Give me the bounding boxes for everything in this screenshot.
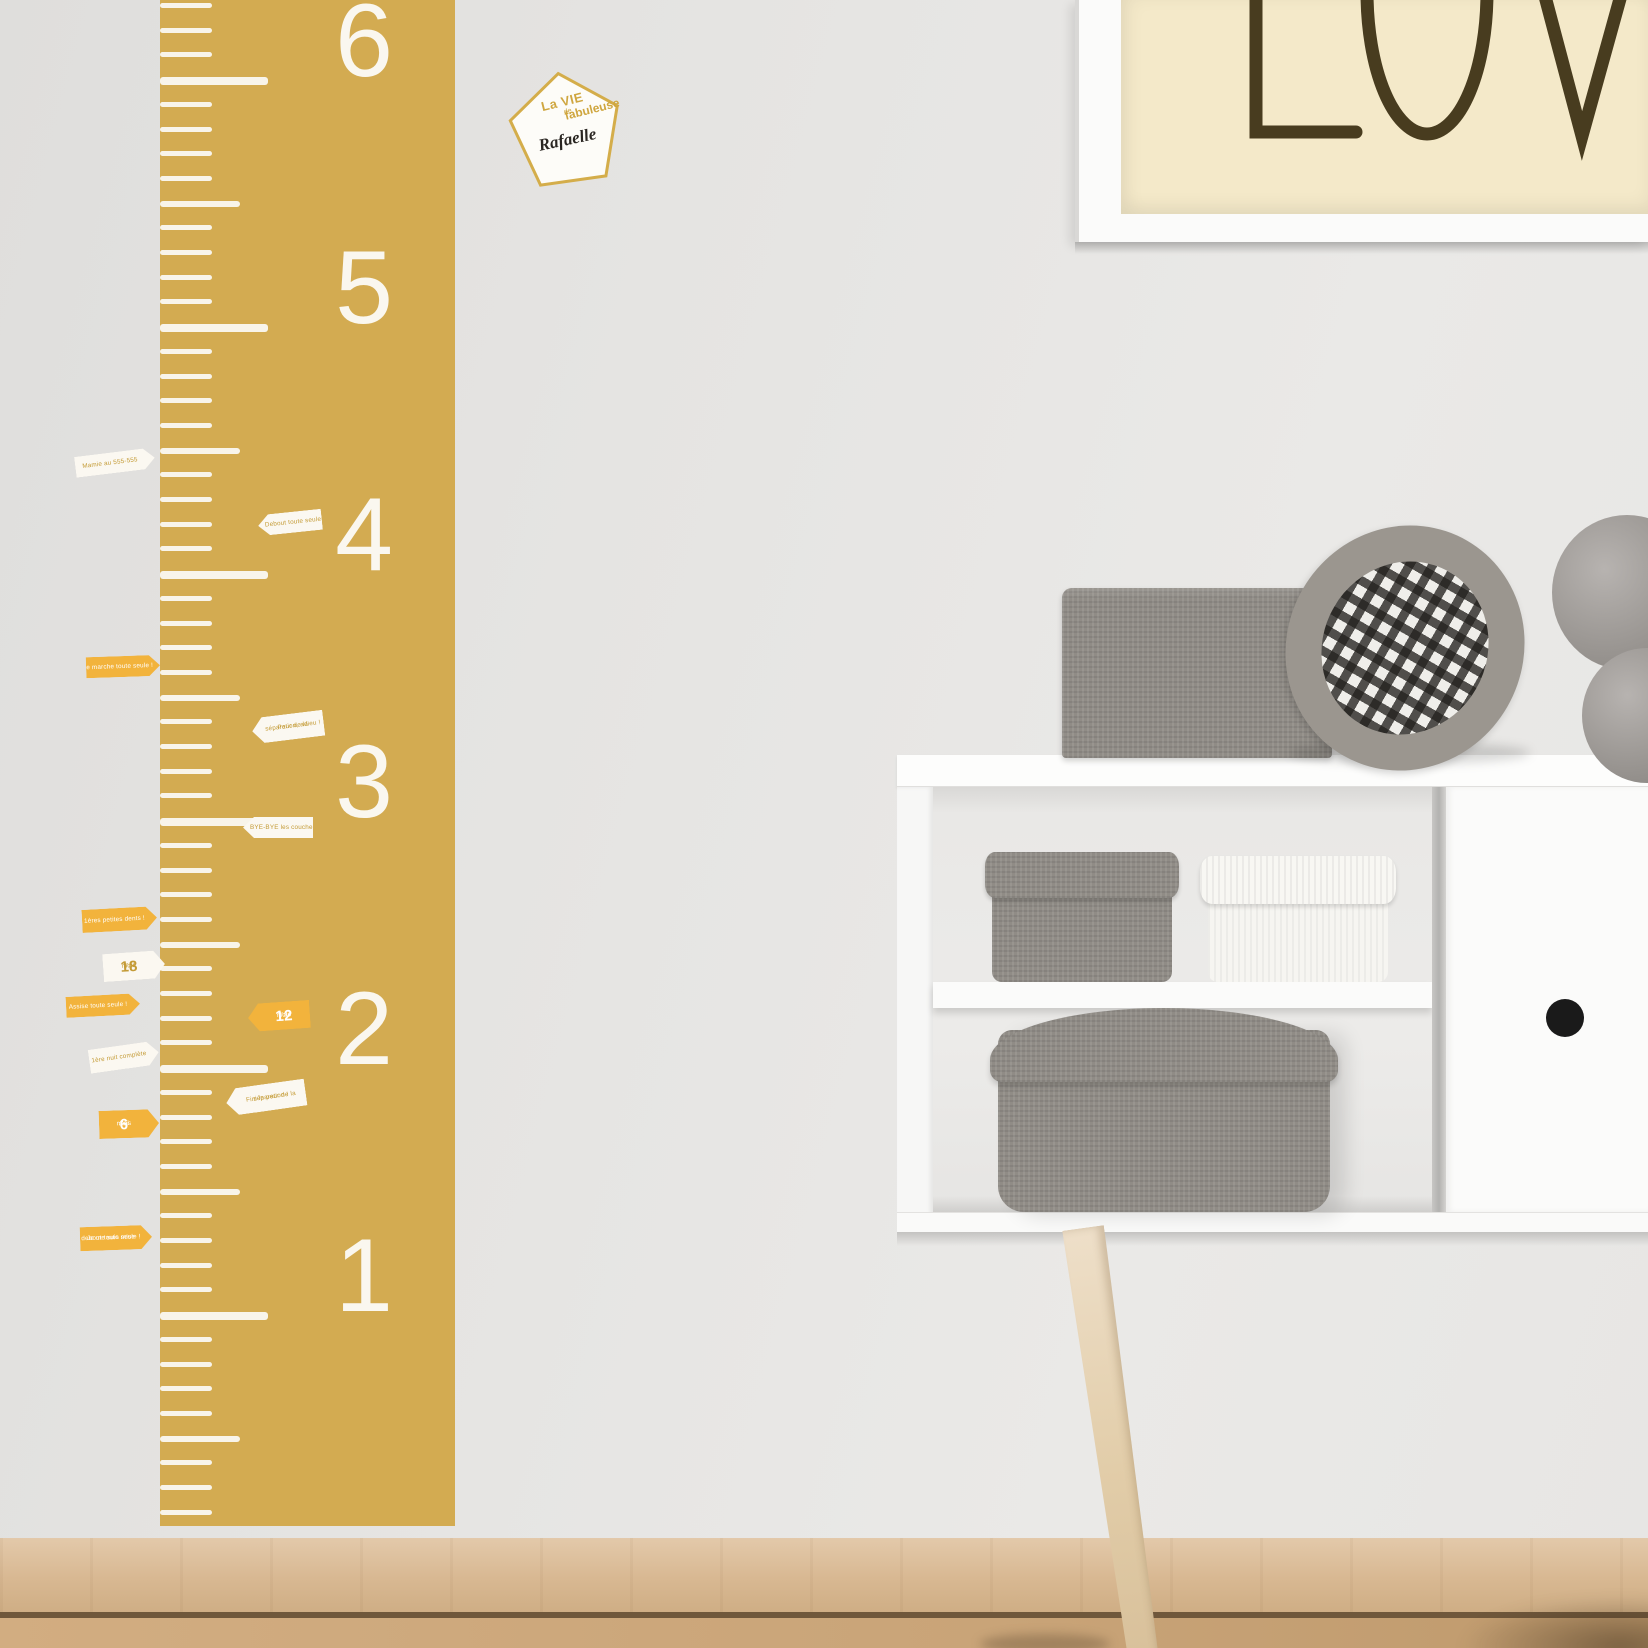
ruler-tick bbox=[160, 398, 212, 403]
ruler-number: 5 bbox=[300, 232, 430, 344]
ruler-tick bbox=[160, 1189, 240, 1195]
ruler-tick bbox=[160, 892, 212, 897]
ruler-tick bbox=[160, 1263, 212, 1268]
ruler-tick bbox=[160, 843, 212, 848]
ruler-number: 2 bbox=[300, 973, 430, 1085]
name-sticker: La VIE fabuleuse de Rafaelle bbox=[497, 60, 635, 198]
sideboard-bottom-board bbox=[897, 1212, 1648, 1232]
ruler-tick bbox=[160, 818, 268, 826]
ruler-tick bbox=[160, 1362, 212, 1367]
storage-box-small-gray bbox=[992, 865, 1172, 982]
ruler-tick bbox=[160, 127, 212, 132]
ruler-tick bbox=[160, 1016, 212, 1021]
leg-shadow bbox=[980, 1634, 1110, 1648]
growth-chart-ruler: 654321 bbox=[160, 0, 455, 1526]
ruler-tick bbox=[160, 1312, 268, 1320]
ruler-tick bbox=[160, 1238, 212, 1243]
ruler-tick bbox=[160, 324, 268, 332]
sideboard-divider bbox=[1432, 787, 1446, 1212]
ruler-tick bbox=[160, 719, 212, 724]
ruler-tick bbox=[160, 868, 212, 873]
ruler-number: 6 bbox=[300, 0, 430, 97]
sideboard-middle-shelf bbox=[933, 982, 1432, 1008]
ruler-tick bbox=[160, 670, 212, 675]
ruler-tick bbox=[160, 793, 212, 798]
milestone-flag: Assise toute seule ! bbox=[66, 993, 141, 1018]
ruler-tick bbox=[160, 52, 212, 57]
ruler-tick bbox=[160, 250, 212, 255]
ruler-tick bbox=[160, 744, 212, 749]
ruler-tick bbox=[160, 299, 212, 304]
ruler-tick bbox=[160, 28, 212, 33]
poster-shadow bbox=[1075, 242, 1648, 254]
teddy-bear bbox=[1552, 515, 1648, 670]
ruler-tick bbox=[160, 3, 212, 8]
ruler-tick bbox=[160, 1065, 268, 1073]
ruler-tick bbox=[160, 423, 212, 428]
door-knob bbox=[1546, 999, 1584, 1037]
milestone-flag: 1ères petites dents ! bbox=[81, 906, 157, 933]
poster-letters bbox=[1075, 0, 1648, 242]
ruler-number: 3 bbox=[300, 726, 430, 838]
ruler-tick bbox=[160, 201, 240, 207]
ruler-tick bbox=[160, 1090, 212, 1095]
ruler-tick bbox=[160, 102, 212, 107]
ruler-tick bbox=[160, 1337, 212, 1342]
ruler-tick bbox=[160, 349, 212, 354]
white-box-lid bbox=[1200, 856, 1396, 904]
milestone-flag: J'ai18mois bbox=[102, 950, 166, 982]
love-poster bbox=[1075, 0, 1648, 242]
ruler-tick bbox=[160, 1460, 212, 1465]
ruler-tick bbox=[160, 621, 212, 626]
ruler-tick bbox=[160, 1164, 212, 1169]
ruler-tick bbox=[160, 1139, 212, 1144]
ruler-tick bbox=[160, 374, 212, 379]
ruler-tick bbox=[160, 1287, 212, 1292]
poster-frame-edge bbox=[1075, 0, 1079, 242]
ruler-tick bbox=[160, 225, 212, 230]
milestone-flag: J'ai6mois bbox=[99, 1109, 160, 1139]
ruler-number: 4 bbox=[300, 479, 430, 591]
sideboard-under-shadow bbox=[897, 1232, 1648, 1246]
ruler-tick bbox=[160, 942, 240, 948]
ruler-tick bbox=[160, 1040, 212, 1045]
ruler-tick bbox=[160, 1436, 240, 1442]
ruler-tick bbox=[160, 1213, 212, 1218]
ruler-number: 1 bbox=[300, 1220, 430, 1332]
nursery-room-photo: 654321 La VIE fabuleuse de Rafaelle bbox=[0, 0, 1648, 1648]
ruler-tick bbox=[160, 522, 212, 527]
ruler-tick bbox=[160, 1411, 212, 1416]
ruler-tick bbox=[160, 1485, 212, 1490]
ruler-tick bbox=[160, 77, 268, 85]
ruler-tick bbox=[160, 448, 240, 454]
ruler-tick bbox=[160, 1386, 212, 1391]
sideboard-top bbox=[897, 755, 1648, 787]
ruler-tick bbox=[160, 966, 212, 971]
wood-floor bbox=[0, 1618, 1648, 1648]
sideboard-door bbox=[1446, 787, 1648, 1212]
milestone-flag: 1ère nuit complète bbox=[88, 1040, 161, 1074]
ruler-tick bbox=[160, 917, 212, 922]
storage-box-oval-gray bbox=[998, 1030, 1330, 1212]
ruler-tick bbox=[160, 176, 212, 181]
ruler-tick bbox=[160, 596, 212, 601]
small-gray-box-lid bbox=[985, 852, 1179, 898]
ruler-tick bbox=[160, 151, 212, 156]
ruler-tick bbox=[160, 275, 212, 280]
ruler-tick bbox=[160, 546, 212, 551]
ruler-tick bbox=[160, 472, 212, 477]
wood-baseboard bbox=[0, 1538, 1648, 1612]
ruler-tick bbox=[160, 645, 212, 650]
milestone-flag: Je me suis misedebout toute seule ! bbox=[80, 1225, 153, 1251]
ruler-tick bbox=[160, 1510, 212, 1515]
ruler-tick bbox=[160, 497, 212, 502]
ruler-tick bbox=[160, 991, 212, 996]
storage-box-white bbox=[1208, 868, 1388, 982]
sideboard-left-panel bbox=[897, 787, 933, 1232]
milestone-flag: Je marche toute seule ! bbox=[86, 655, 161, 679]
milestone-flag: Mamie au 555-555 bbox=[74, 447, 156, 478]
ruler-tick bbox=[160, 695, 240, 701]
ruler-tick bbox=[160, 571, 268, 579]
ruler-tick bbox=[160, 1115, 212, 1120]
ruler-tick bbox=[160, 769, 212, 774]
